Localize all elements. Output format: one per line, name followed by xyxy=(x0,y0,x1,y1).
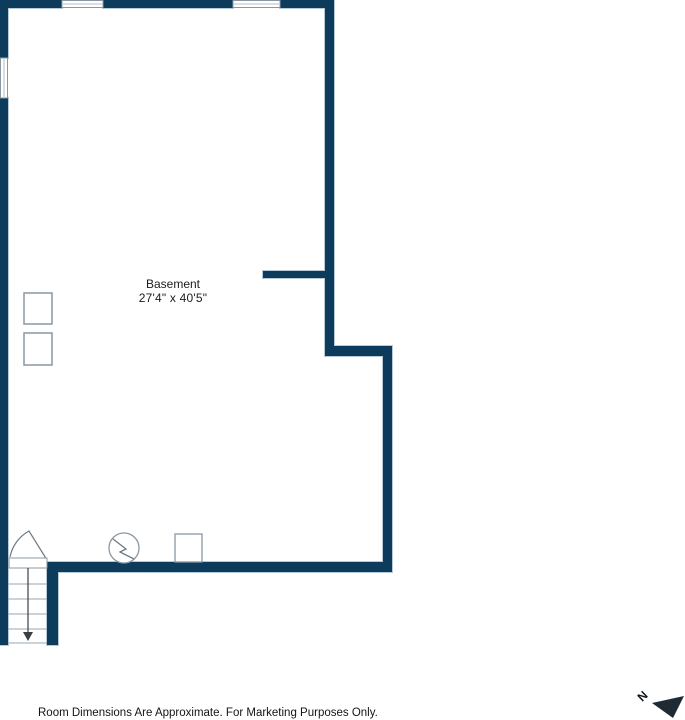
window-symbols xyxy=(1,1,281,99)
support-post-icon xyxy=(24,333,52,365)
room-dimensions-label: 27'4" x 40'5" xyxy=(93,291,253,305)
staircase-symbol xyxy=(8,568,47,643)
room-label: Basement 27'4" x 40'5" xyxy=(93,277,253,305)
floor-plan-viewer: Basement 27'4" x 40'5" Room Dimensions A… xyxy=(0,0,685,720)
disclaimer-text: Room Dimensions Are Approximate. For Mar… xyxy=(38,706,378,720)
door-swing-symbol xyxy=(9,531,47,568)
water-heater-icon xyxy=(109,533,139,563)
support-posts xyxy=(24,293,52,365)
furnace-icon xyxy=(175,534,202,562)
support-post-icon xyxy=(24,293,52,324)
stairs-down-arrow xyxy=(23,568,33,641)
floor-plan-drawing xyxy=(0,0,685,720)
room-name-label: Basement xyxy=(93,277,253,291)
north-arrow-icon xyxy=(652,696,684,718)
